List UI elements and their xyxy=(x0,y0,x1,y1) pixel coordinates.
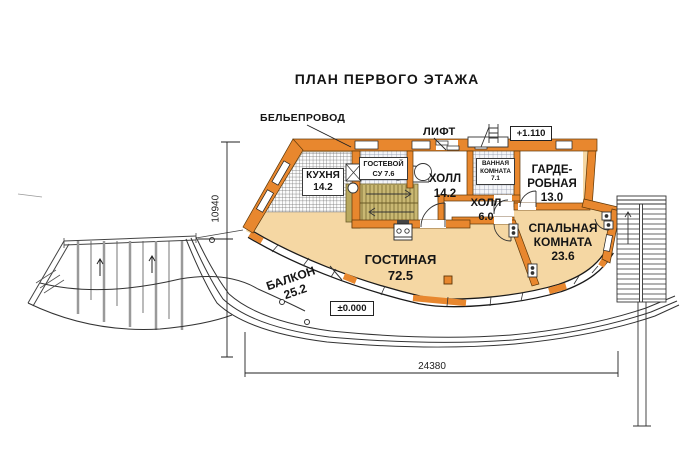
exterior-stairs xyxy=(617,196,666,426)
room-name: ВАННАЯ xyxy=(477,160,514,168)
room-label-hall-small: ХОЛЛ 6.0 xyxy=(461,196,511,224)
room-area: 7.1 xyxy=(477,175,514,183)
label-laundry-chute: БЕЛЬЕПРОВОД xyxy=(260,112,345,124)
room-name: КОМНАТА xyxy=(477,168,514,176)
room-label-bedroom: СПАЛЬНАЯ КОМНАТА 23.6 xyxy=(512,221,614,263)
deck-posts xyxy=(78,241,182,330)
floor-plan-page: ПЛАН ПЕРВОГО ЭТАЖА БЕЛЬЕПРОВОД ЛИФТ +1.1… xyxy=(0,0,700,466)
room-area: 72.5 xyxy=(343,268,458,284)
entry-platform xyxy=(468,124,508,147)
room-name: КУХНЯ xyxy=(303,170,343,182)
dimension-height: 10940 xyxy=(210,186,222,232)
dimension-width: 24380 xyxy=(402,361,462,373)
room-area: 23.6 xyxy=(512,249,614,263)
level-marker-upper: +1.110 xyxy=(510,126,552,141)
room-area: 14.2 xyxy=(303,182,343,194)
room-area: СУ 7.6 xyxy=(360,169,407,179)
room-name: СПАЛЬНАЯ xyxy=(512,221,614,235)
room-name: ГОСТИНАЯ xyxy=(343,252,458,268)
room-label-kitchen: КУХНЯ 14.2 xyxy=(302,168,344,196)
slope-arrow xyxy=(97,259,103,276)
label-elevator: ЛИФТ xyxy=(423,126,456,139)
page-title: ПЛАН ПЕРВОГО ЭТАЖА xyxy=(267,71,507,87)
room-label-living: ГОСТИНАЯ 72.5 xyxy=(343,252,458,284)
room-area: 13.0 xyxy=(517,191,587,205)
room-label-bathroom: ВАННАЯ КОМНАТА 7.1 xyxy=(476,158,515,185)
room-name: ГАРДЕ- xyxy=(517,163,587,177)
room-name: ХОЛЛ xyxy=(461,196,511,210)
room-name: РОБНАЯ xyxy=(517,177,587,191)
slope-arrow xyxy=(149,256,155,273)
room-name: ГОСТЕВОЙ xyxy=(360,159,407,169)
room-area: 6.0 xyxy=(461,210,511,224)
level-marker-zero: ±0.000 xyxy=(330,301,374,316)
room-label-guest-wc: ГОСТЕВОЙ СУ 7.6 xyxy=(359,157,408,180)
room-name: КОМНАТА xyxy=(512,235,614,249)
room-name: ХОЛЛ xyxy=(417,172,473,187)
room-label-wardrobe: ГАРДЕ- РОБНАЯ 13.0 xyxy=(517,163,587,205)
